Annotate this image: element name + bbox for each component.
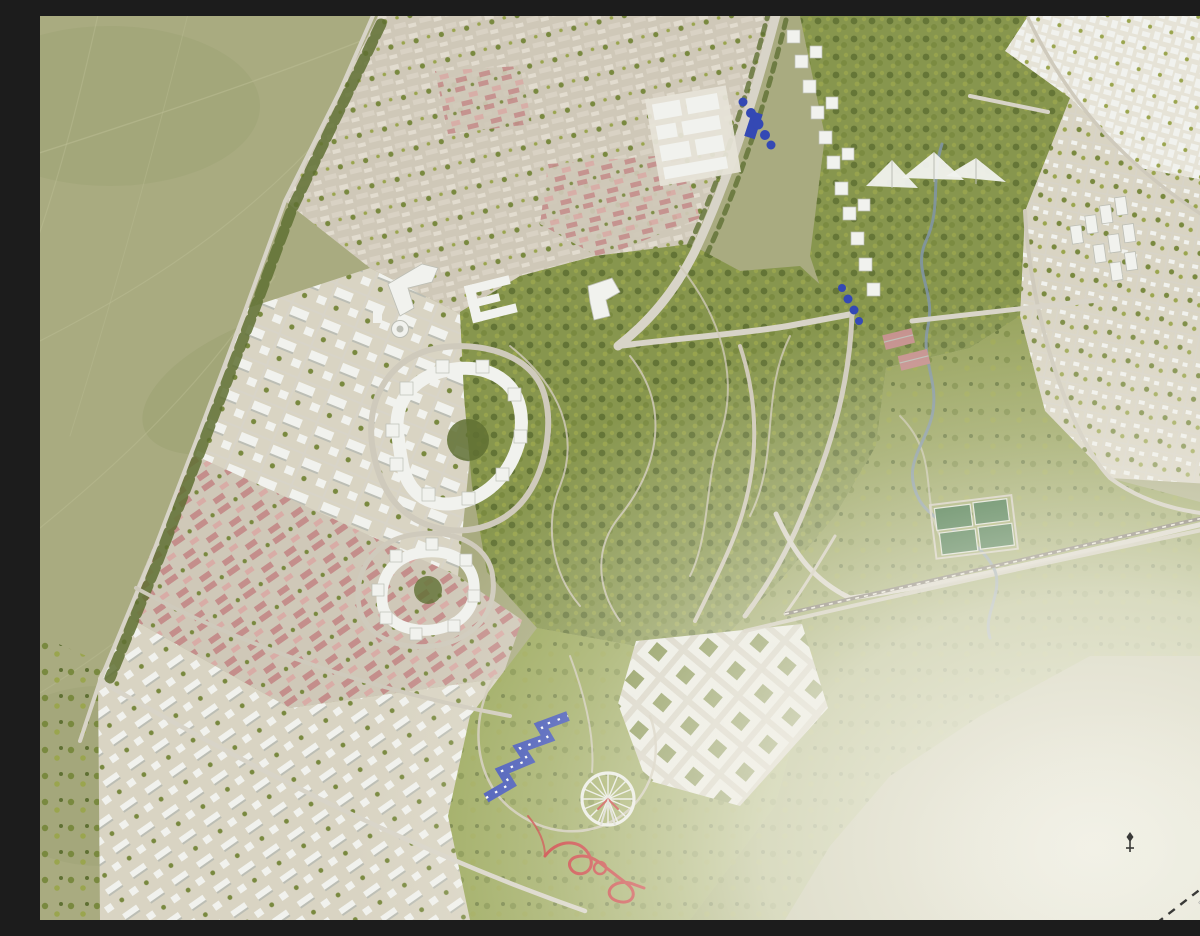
masterplan-aerial-render: Aerial 3D masterplan rendering of a plan… bbox=[40, 16, 1200, 920]
masterplan-canvas bbox=[40, 16, 1200, 920]
